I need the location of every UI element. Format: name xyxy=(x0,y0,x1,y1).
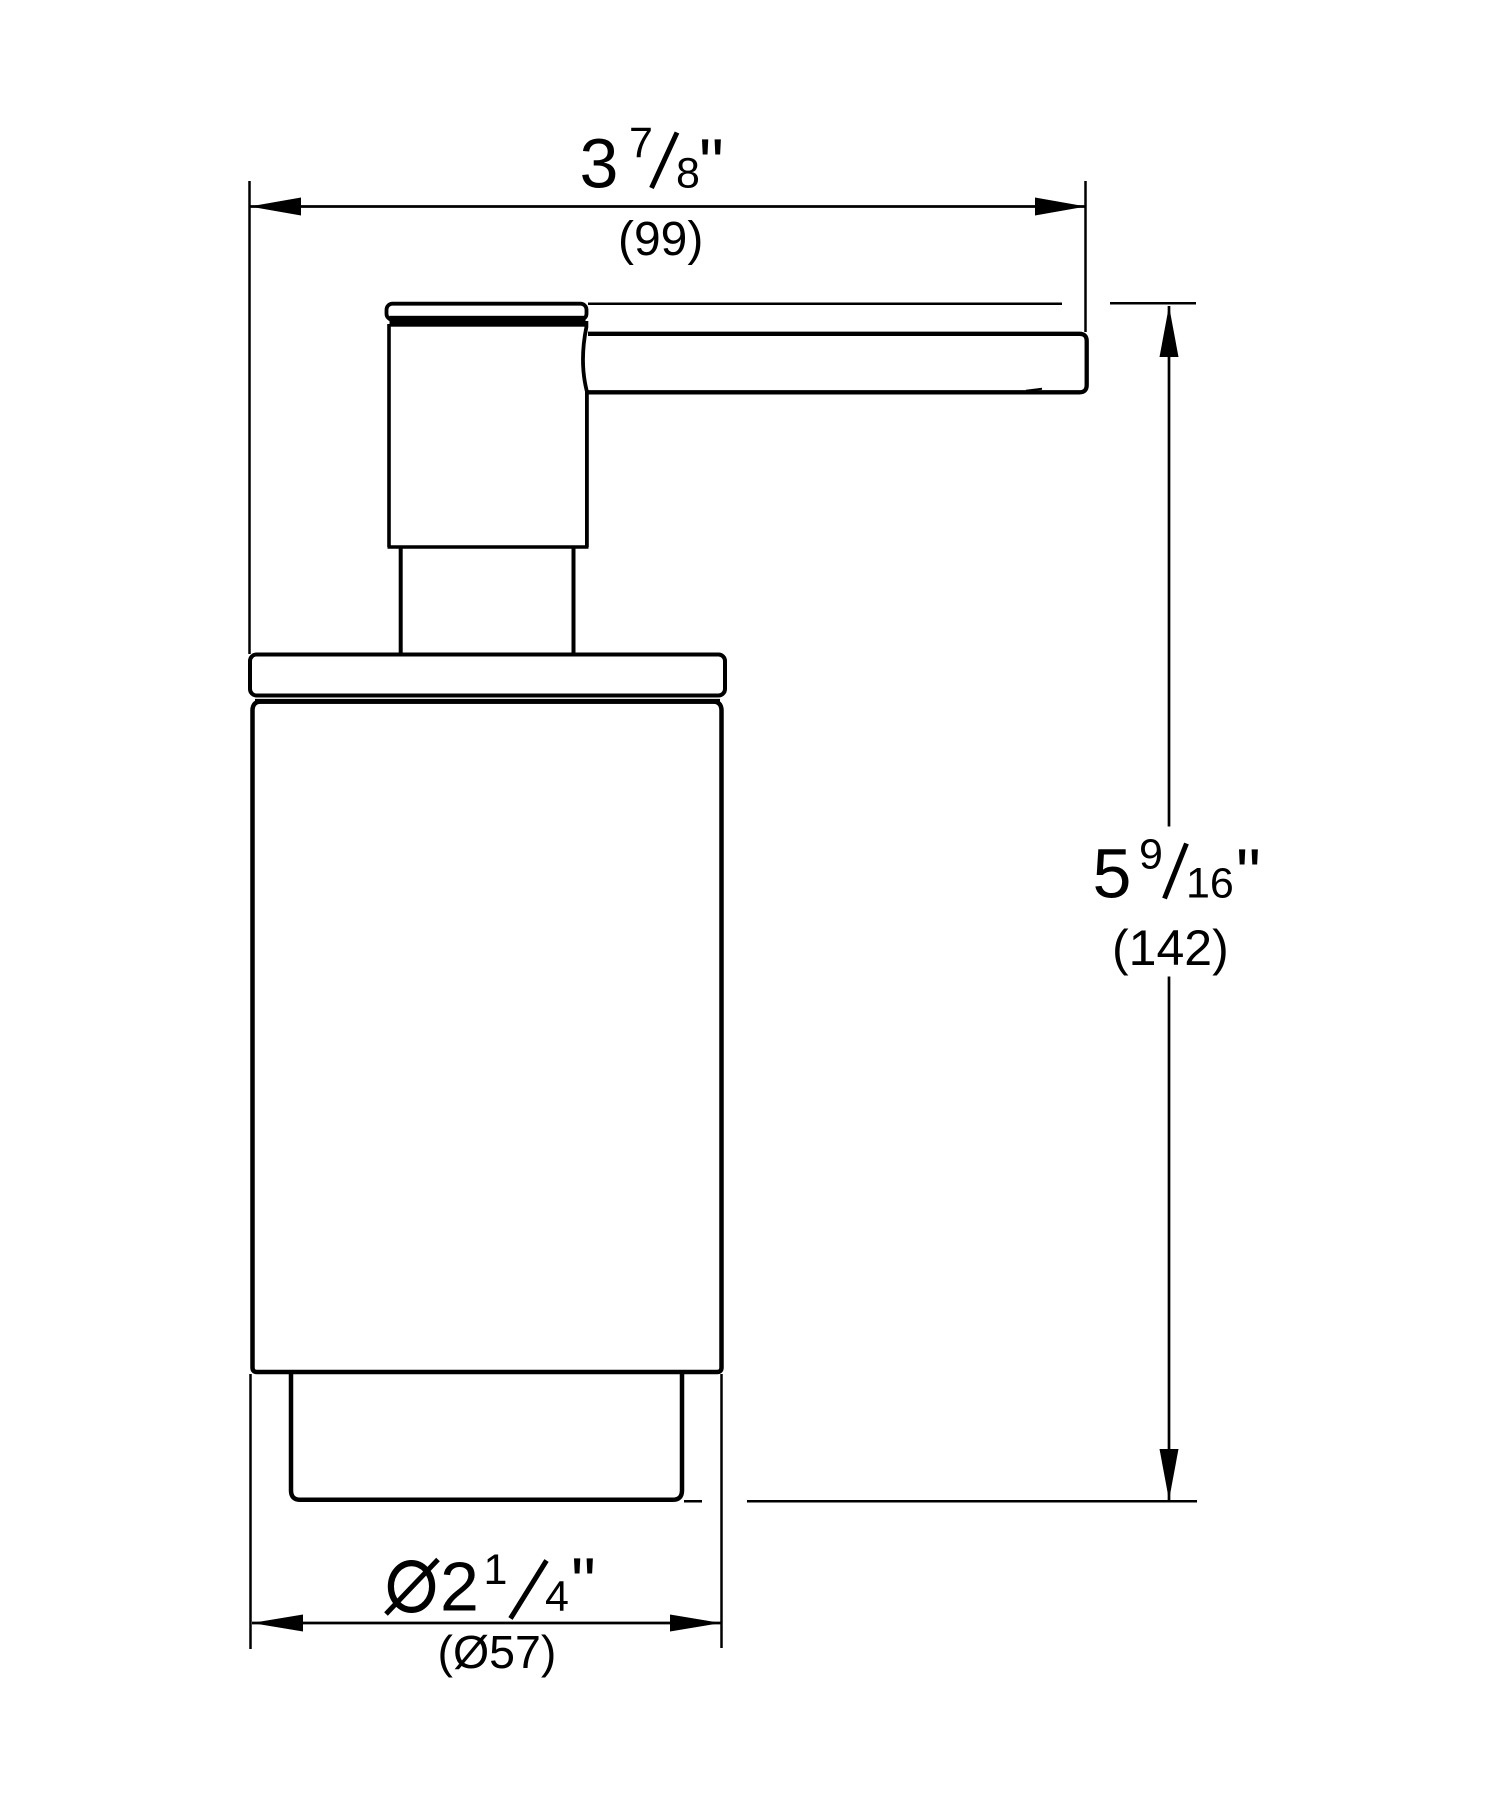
svg-text:2: 2 xyxy=(440,1548,479,1626)
svg-text:(142): (142) xyxy=(1112,920,1229,976)
svg-text:7: 7 xyxy=(629,119,653,167)
svg-text:(Ø57): (Ø57) xyxy=(438,1626,557,1678)
svg-text:": " xyxy=(699,125,724,203)
svg-text:8: 8 xyxy=(676,150,700,198)
svg-text:": " xyxy=(571,1544,596,1622)
svg-text:1: 1 xyxy=(484,1546,508,1594)
svg-text:": " xyxy=(1236,835,1261,913)
svg-text:4: 4 xyxy=(545,1573,569,1621)
svg-text:9: 9 xyxy=(1139,830,1163,878)
svg-text:3: 3 xyxy=(580,125,619,203)
svg-text:(99): (99) xyxy=(618,213,703,266)
svg-text:16: 16 xyxy=(1186,860,1234,908)
svg-text:5: 5 xyxy=(1093,835,1132,913)
